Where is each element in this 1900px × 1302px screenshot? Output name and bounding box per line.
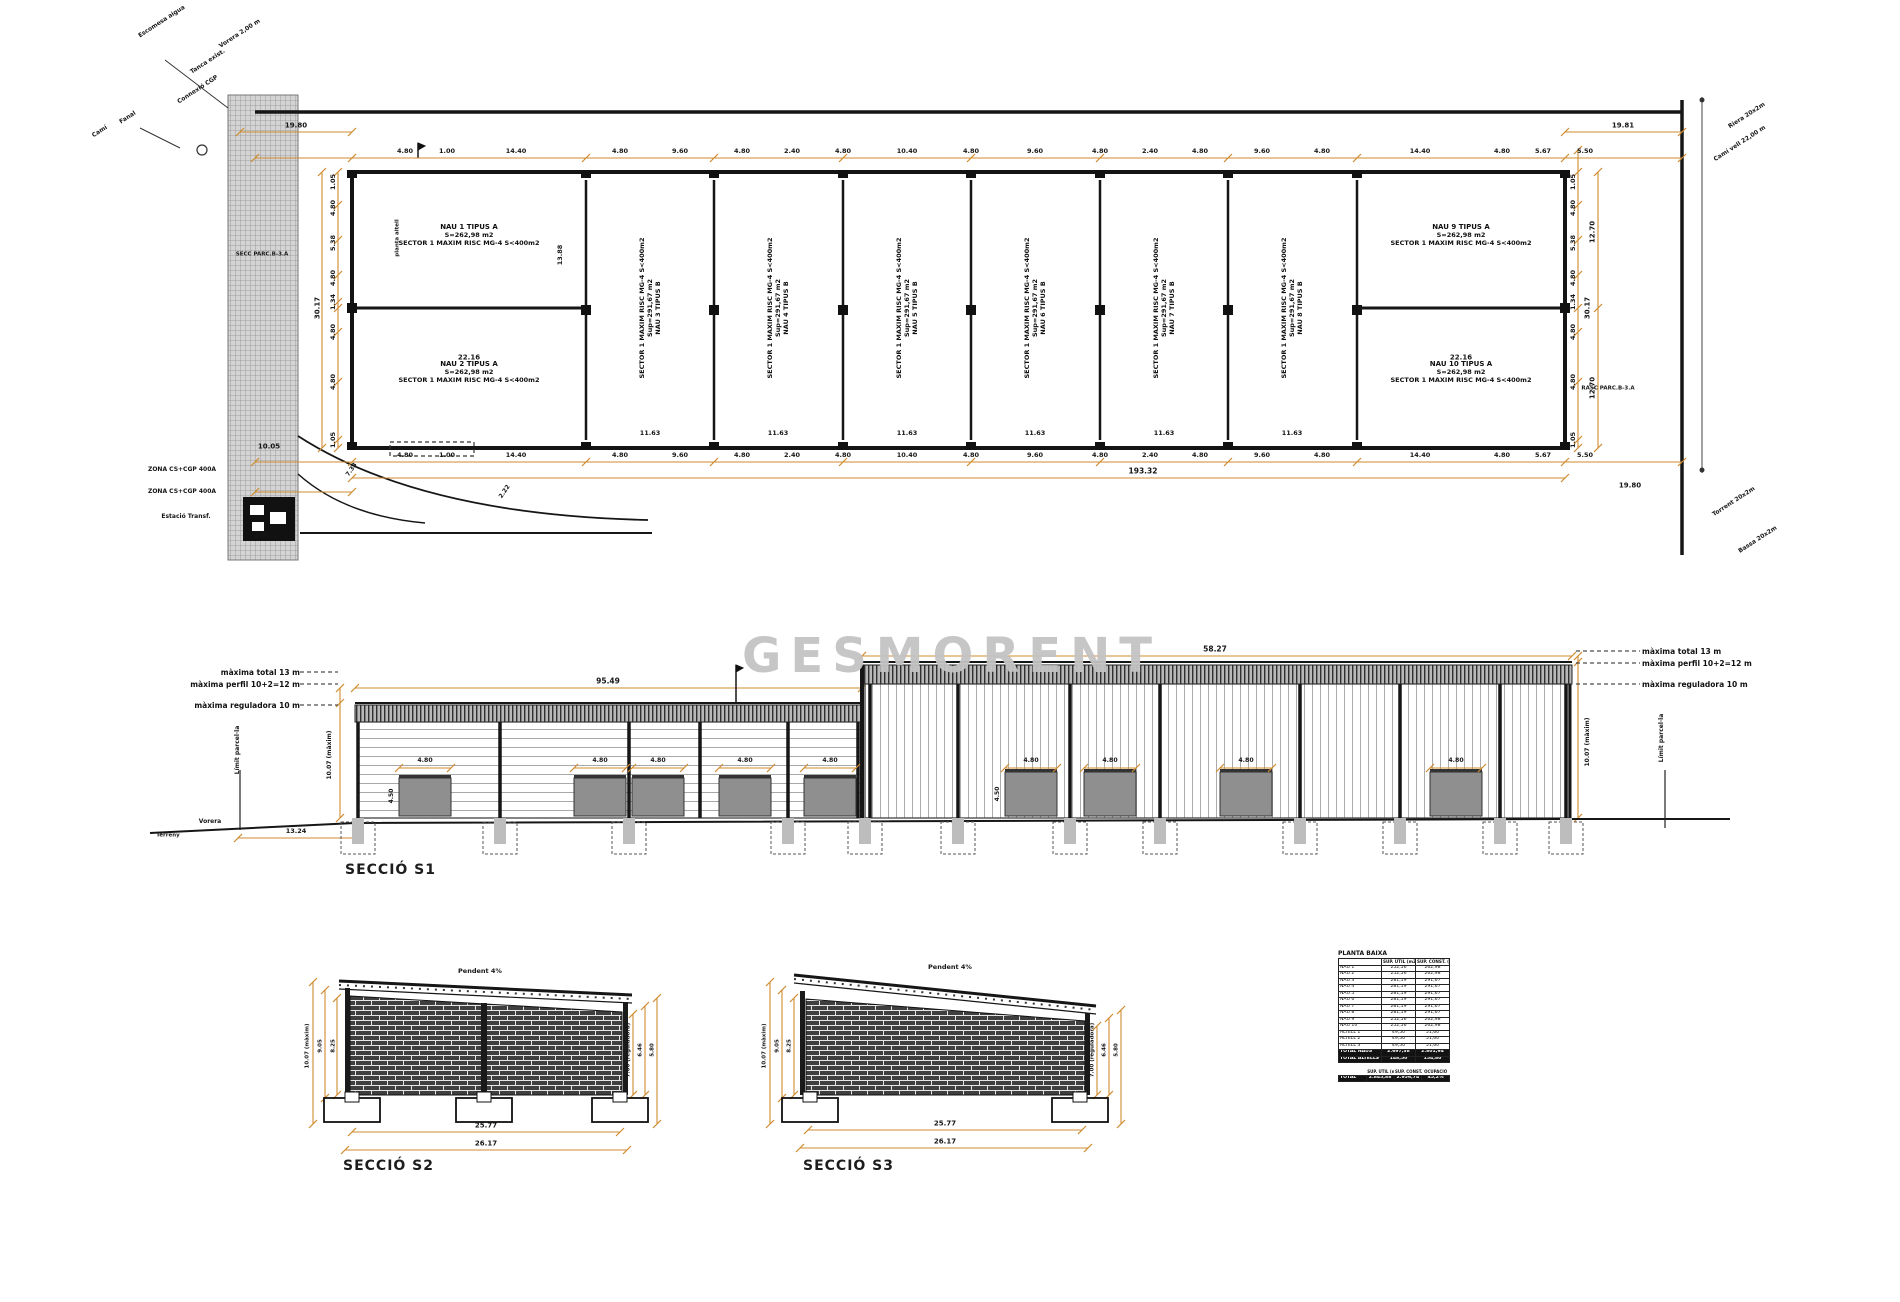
dim-label: 2.40 [784, 452, 800, 459]
dim-label: 19.80 [1619, 483, 1641, 490]
dim-label: 4.50 [389, 789, 395, 804]
dim-label: 7.00 (reguladora) [1090, 1023, 1096, 1078]
dim-label: 4.80 [1092, 452, 1108, 459]
dim-label: 1.05 [1570, 174, 1577, 190]
nave-bay-label: SECTOR 1 MAXIM RISC MG-4 S<400m2Sup=291,… [766, 178, 790, 438]
dim-label: 4.80 [612, 148, 628, 155]
dim-label: 9.60 [1027, 452, 1043, 459]
annotation-maxima-total-right: màxima total 13 m [1642, 647, 1721, 656]
dim-label: 25.77 [475, 1123, 497, 1130]
dim-label: ZONA CS+CGP 400A [148, 489, 216, 495]
dim-label: 14.40 [1410, 148, 1431, 155]
dim-label: 4.80 [1570, 374, 1577, 390]
drawing-canvas: 19.8019.8110.05193.3219.807.332.224.0030… [0, 0, 1900, 1302]
dim-label: 14.40 [1410, 452, 1431, 459]
dim-label: 4.80 [1238, 758, 1253, 764]
table-row: ALTELL 349,5051,60 [1339, 1043, 1450, 1050]
dim-label: 2.40 [784, 148, 800, 155]
annotation-maxima-total-left: màxima total 13 m [150, 668, 300, 677]
dim-label: 26.17 [934, 1139, 956, 1146]
watermark: GESMORENT [742, 628, 1161, 684]
dim-label: 4.80 [397, 452, 413, 459]
dim-label: Pendent 4% [928, 964, 972, 971]
nave-bay-label: SECTOR 1 MAXIM RISC MG-4 S<400m2Sup=291,… [638, 178, 662, 438]
dim-label: 58.27 [1203, 645, 1227, 653]
annotation-maxima-reguladora-left: màxima reguladora 10 m [150, 701, 300, 710]
dim-label: 1.00 [439, 452, 455, 459]
nave-unit-label: NAU 1 TIPUS AS=262,98 m2SECTOR 1 MAXIM R… [369, 223, 569, 247]
dim-label: 4.80 [734, 148, 750, 155]
dim-label: 8.25 [331, 1039, 337, 1053]
area-schedule-table: PLANTA BAIXA SUP. ÚTIL (m2) SUP. CONST. … [1338, 950, 1454, 1082]
dim-label: 4.80 [330, 324, 337, 340]
dim-label: 5.38 [1570, 235, 1577, 251]
dim-label: 13.88 [557, 245, 564, 266]
dim-label: 9.60 [672, 452, 688, 459]
dim-label: Estació Transf. [161, 514, 210, 520]
dim-label: 4.80 [1570, 324, 1577, 340]
nave-bay-label: SECTOR 1 MAXIM RISC MG-4 S<400m2Sup=291,… [1023, 178, 1047, 438]
dim-label: 2.40 [1142, 148, 1158, 155]
dim-label: 10.07 (màxim) [762, 1024, 768, 1069]
dim-label: 10.40 [897, 148, 918, 155]
dim-label: 4.80 [397, 148, 413, 155]
section-s3-title: SECCIÓ S3 [803, 1158, 894, 1174]
dim-label: 4.80 [1192, 452, 1208, 459]
dim-label: 4.80 [1314, 148, 1330, 155]
dim-label: Terreny [156, 833, 179, 839]
nave-unit-label: NAU 2 TIPUS AS=262,98 m2SECTOR 1 MAXIM R… [369, 360, 569, 384]
dim-label: 1.00 [439, 148, 455, 155]
dim-label: 7.00 (reguladora) [626, 1023, 632, 1078]
dim-label: 19.81 [1612, 123, 1634, 130]
dim-label: 9.60 [1254, 452, 1270, 459]
table-row: ALTELL 249,5051,60 [1339, 1037, 1450, 1044]
dim-label: 4.80 [1314, 452, 1330, 459]
dim-label: 30.17 [1585, 297, 1592, 319]
dim-label: 9.60 [672, 148, 688, 155]
dim-label: 9.60 [1027, 148, 1043, 155]
nave-unit-label: NAU 10 TIPUS AS=262,98 m2SECTOR 1 MAXIM … [1361, 360, 1561, 384]
dim-label: 9.60 [1254, 148, 1270, 155]
dim-label: 4.80 [1102, 758, 1117, 764]
dim-label: 1.05 [330, 432, 337, 448]
dim-label: 14.40 [506, 148, 527, 155]
dim-label: 2.40 [1142, 452, 1158, 459]
dim-label: 9.05 [775, 1039, 781, 1053]
annotation-maxima-perfil-right: màxima perfil 10+2=12 m [1642, 659, 1752, 668]
dim-label: 8.25 [787, 1039, 793, 1053]
dim-label: 10.40 [897, 452, 918, 459]
dim-label: 1.05 [330, 174, 337, 190]
dim-label: 5.80 [1114, 1043, 1120, 1057]
table-row: ALTELL 149,5051,60 [1339, 1030, 1450, 1037]
dim-label: 13.24 [286, 828, 307, 835]
dim-label: RASC PARC.B-3.A [1581, 386, 1634, 392]
dim-label: 10.07 (màxim) [327, 730, 333, 779]
table-row: NAU 10252,56262,98 [1339, 1024, 1450, 1031]
dim-label: 5.80 [650, 1043, 656, 1057]
dim-label: Pendent 4% [458, 968, 502, 975]
dim-label: 4.80 [330, 200, 337, 216]
dim-label: 4.80 [1494, 148, 1510, 155]
dim-label: 1.05 [1570, 432, 1577, 448]
dim-label: Límit parcel·la [235, 726, 241, 775]
dim-label: 5.67 [1535, 452, 1551, 459]
dim-label: 4.80 [963, 148, 979, 155]
planta-baixa-table: SUP. ÚTIL (m2) SUP. CONST. (m2) NAU 1252… [1338, 958, 1450, 1063]
annotation-maxima-perfil-left: màxima perfil 10+2=12 m [150, 680, 300, 689]
nave-bay-label: SECTOR 1 MAXIM RISC MG-4 S<400m2Sup=291,… [1280, 178, 1304, 438]
dim-label: 4.80 [835, 148, 851, 155]
dim-label: 4.80 [1192, 148, 1208, 155]
dim-label: 4.80 [612, 452, 628, 459]
dim-label: 4.80 [1023, 758, 1038, 764]
dim-label: 4.80 [734, 452, 750, 459]
dim-label: 4.80 [963, 452, 979, 459]
dim-label: 4.80 [737, 758, 752, 764]
dim-label: 30.17 [315, 297, 322, 319]
dim-label: 5.50 [1577, 452, 1593, 459]
nave-bay-label: SECTOR 1 MAXIM RISC MG-4 S<400m2Sup=291,… [1152, 178, 1176, 438]
dim-label: 5.67 [1535, 148, 1551, 155]
dim-label: 95.49 [596, 677, 620, 685]
dim-label: 4.80 [822, 758, 837, 764]
dim-label: 4.80 [1494, 452, 1510, 459]
dim-label: ZONA CS+CGP 400A [148, 467, 216, 473]
table-title: PLANTA BAIXA [1338, 950, 1454, 957]
dim-label: 4.80 [650, 758, 665, 764]
dim-label: 10.05 [258, 444, 280, 451]
dim-label: 4.80 [1570, 270, 1577, 286]
dim-label: 4.80 [417, 758, 432, 764]
dim-label: SECC PARC.B-3.A [236, 252, 289, 258]
summary-value: 45,2% [1422, 1075, 1450, 1082]
dim-label: 10.07 (màxim) [1585, 717, 1591, 766]
dim-label: 5.50 [1577, 148, 1593, 155]
dim-label: 6.46 [1102, 1043, 1108, 1057]
dim-label: 10.07 (màxim) [305, 1024, 311, 1069]
dim-label: 1.34 [330, 294, 337, 310]
dim-label: 4.50 [995, 787, 1001, 802]
dim-label: 4.80 [1570, 200, 1577, 216]
nave-bay-label: SECTOR 1 MAXIM RISC MG-4 S<400m2Sup=291,… [895, 178, 919, 438]
dim-label: 12.70 [1590, 221, 1597, 243]
dim-label: Límit parcel·la [1659, 714, 1665, 763]
dim-label: 25.77 [934, 1121, 956, 1128]
table-total-row: TOTAL NAUS2.697,382.801,94 [1339, 1050, 1450, 1057]
dim-label: 1.34 [1570, 294, 1577, 310]
dim-label: 4.80 [592, 758, 607, 764]
dim-label: 9.05 [318, 1039, 324, 1053]
dim-label: 5.38 [330, 235, 337, 251]
summary-value: 2.956,74 [1394, 1075, 1422, 1082]
nave-unit-label: NAU 9 TIPUS AS=262,98 m2SECTOR 1 MAXIM R… [1361, 223, 1561, 247]
annotation-maxima-reguladora-right: màxima reguladora 10 m [1642, 680, 1748, 689]
dim-label: 4.80 [330, 374, 337, 390]
dim-label: 4.80 [330, 270, 337, 286]
dim-label: 14.40 [506, 452, 527, 459]
section-s1-title: SECCIÓ S1 [345, 862, 436, 878]
section-s2-title: SECCIÓ S2 [343, 1158, 434, 1174]
dim-label: 19.80 [285, 123, 307, 130]
dim-label: 4.80 [1092, 148, 1108, 155]
summary-total-label: TOTAL [1339, 1075, 1367, 1082]
dim-label: 193.32 [1129, 467, 1158, 475]
dim-label: 26.17 [475, 1141, 497, 1148]
dim-label: Vorera [199, 819, 221, 825]
dim-label: 4.80 [835, 452, 851, 459]
dim-label: 4.80 [1448, 758, 1463, 764]
table-total-row: TOTAL ALTELLS148,50154,80 [1339, 1056, 1450, 1063]
summary-value: 2.845,88 [1366, 1075, 1394, 1082]
dim-label: 6.46 [638, 1043, 644, 1057]
dim-label: 4.00 [255, 534, 270, 540]
totals-summary-table: SUP. ÚTIL (m2) SUP. CONST. (m2) OCUPACIÓ… [1338, 1069, 1450, 1082]
